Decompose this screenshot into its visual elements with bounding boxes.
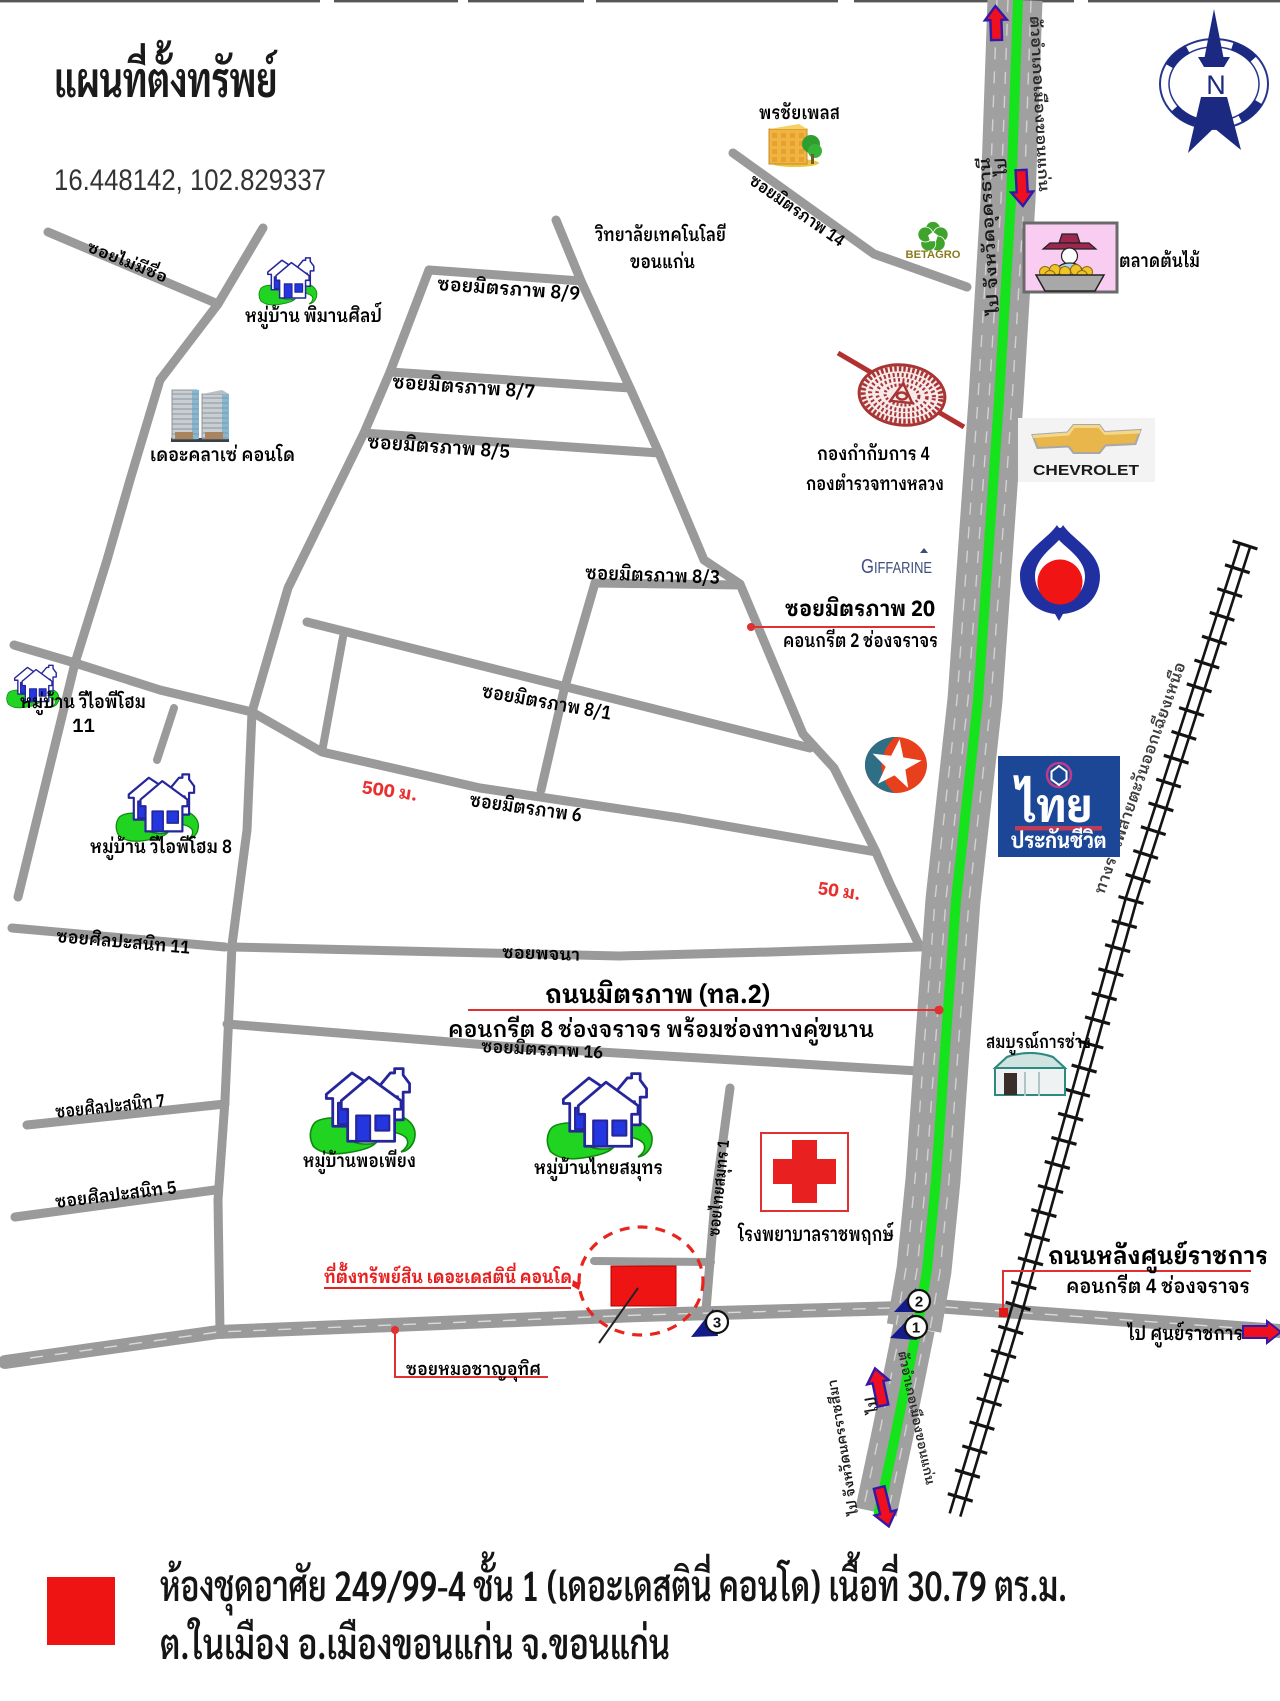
- svg-text:N: N: [1206, 70, 1226, 100]
- svg-text:1: 1: [912, 1320, 920, 1337]
- svg-text:3: 3: [713, 1315, 721, 1332]
- svg-text:2: 2: [915, 1294, 923, 1311]
- svg-text:BETAGRO: BETAGRO: [906, 249, 961, 261]
- svg-text:CHEVROLET: CHEVROLET: [1033, 462, 1139, 479]
- svg-text:GIFFARINE: GIFFARINE: [861, 556, 932, 578]
- svg-text:16.448142, 102.829337: 16.448142, 102.829337: [54, 164, 326, 197]
